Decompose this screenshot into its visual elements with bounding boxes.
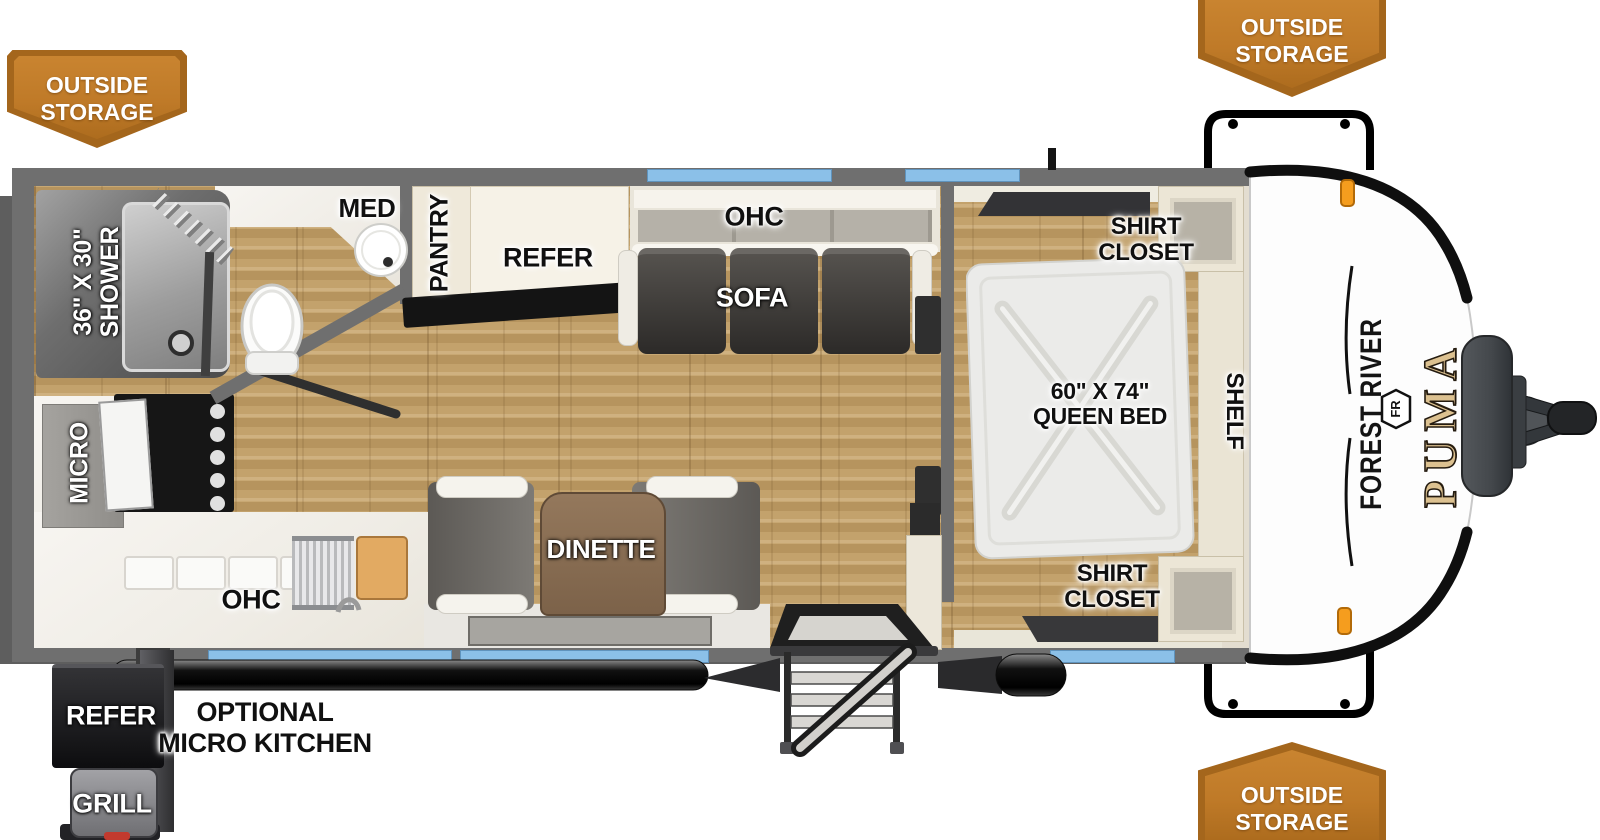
banner-line2: STORAGE bbox=[7, 99, 187, 126]
toilet-tank bbox=[246, 352, 298, 374]
ohc-bottom-label: OHC bbox=[221, 585, 280, 614]
rv-floorplan: FR 36" X 30" SHOWER MED PANTRY REFER OHC… bbox=[0, 0, 1600, 840]
shirt-bottom-line1: SHIRT bbox=[1064, 561, 1160, 587]
banner-line1: OUTSIDE bbox=[1198, 782, 1386, 809]
shelf-label: SHELF bbox=[1221, 372, 1247, 449]
rack-bolt bbox=[1340, 119, 1350, 129]
queen-bed-label: 60" X 74" QUEEN BED bbox=[1033, 379, 1167, 429]
step-rail-left bbox=[784, 652, 791, 744]
puma-decal: PUMA bbox=[1416, 340, 1467, 508]
optional-micro-kitchen-label: OPTIONAL MICRO KITCHEN bbox=[158, 697, 372, 759]
micro-label: MICRO bbox=[67, 422, 94, 504]
propane-cover bbox=[1462, 336, 1512, 496]
banner-line1: OUTSIDE bbox=[7, 72, 187, 99]
shirt-closet-top-label: SHIRT CLOSET bbox=[1098, 214, 1194, 266]
awning-arm-left bbox=[704, 658, 780, 692]
shirt-top-line2: CLOSET bbox=[1098, 240, 1194, 266]
grill-knob bbox=[104, 832, 130, 840]
marker-light-bottom bbox=[1338, 608, 1351, 634]
step-foot-right bbox=[890, 742, 904, 754]
shower-size: 36" X 30" bbox=[70, 227, 97, 338]
bath-faucet bbox=[383, 257, 393, 267]
hitch-coupler bbox=[1548, 402, 1596, 434]
marker-light-top bbox=[1341, 180, 1354, 206]
outside-refer-label: REFER bbox=[66, 701, 156, 730]
shirt-bottom-line2: CLOSET bbox=[1064, 587, 1160, 613]
awning-rail-right bbox=[996, 654, 1066, 696]
med-cabinet-label: MED bbox=[339, 194, 396, 222]
fr-logo-monogram: FR bbox=[1388, 400, 1403, 418]
optional-line1: OPTIONAL bbox=[158, 697, 372, 728]
pantry-label: PANTRY bbox=[427, 194, 454, 292]
awning-rail-left bbox=[112, 660, 708, 690]
ohc-top-label: OHC bbox=[724, 202, 783, 231]
bed-size: 60" X 74" bbox=[1033, 379, 1167, 404]
shower-label: 36" X 30" SHOWER bbox=[70, 227, 124, 338]
forest-river-decal: FOREST RIVER bbox=[1356, 318, 1388, 510]
outside-storage-banner-top-right: OUTSIDE STORAGE bbox=[1198, 0, 1386, 97]
optional-line2: MICRO KITCHEN bbox=[158, 728, 372, 759]
bed-word: QUEEN BED bbox=[1033, 404, 1167, 429]
shower-word: SHOWER bbox=[97, 227, 124, 338]
outside-storage-banner-bottom-right: OUTSIDE STORAGE bbox=[1198, 742, 1386, 840]
banner-line2: STORAGE bbox=[1198, 41, 1386, 68]
rack-bolt bbox=[1340, 699, 1350, 709]
grill-label: GRILL bbox=[72, 789, 152, 818]
kitchen-faucet bbox=[338, 600, 359, 612]
shirt-closet-bottom-label: SHIRT CLOSET bbox=[1064, 561, 1160, 613]
banner-line1: OUTSIDE bbox=[1198, 14, 1386, 41]
awning-arm-right bbox=[938, 656, 1002, 694]
rack-bolt bbox=[1228, 119, 1238, 129]
refer-label: REFER bbox=[503, 243, 593, 272]
rack-bolt bbox=[1228, 699, 1238, 709]
shirt-top-line1: SHIRT bbox=[1098, 214, 1194, 240]
banner-line2: STORAGE bbox=[1198, 809, 1386, 836]
outside-storage-banner-top-left: OUTSIDE STORAGE bbox=[7, 50, 187, 148]
toilet-seat bbox=[251, 291, 293, 353]
dinette-label: DINETTE bbox=[546, 535, 655, 563]
sofa-label: SOFA bbox=[716, 283, 788, 312]
